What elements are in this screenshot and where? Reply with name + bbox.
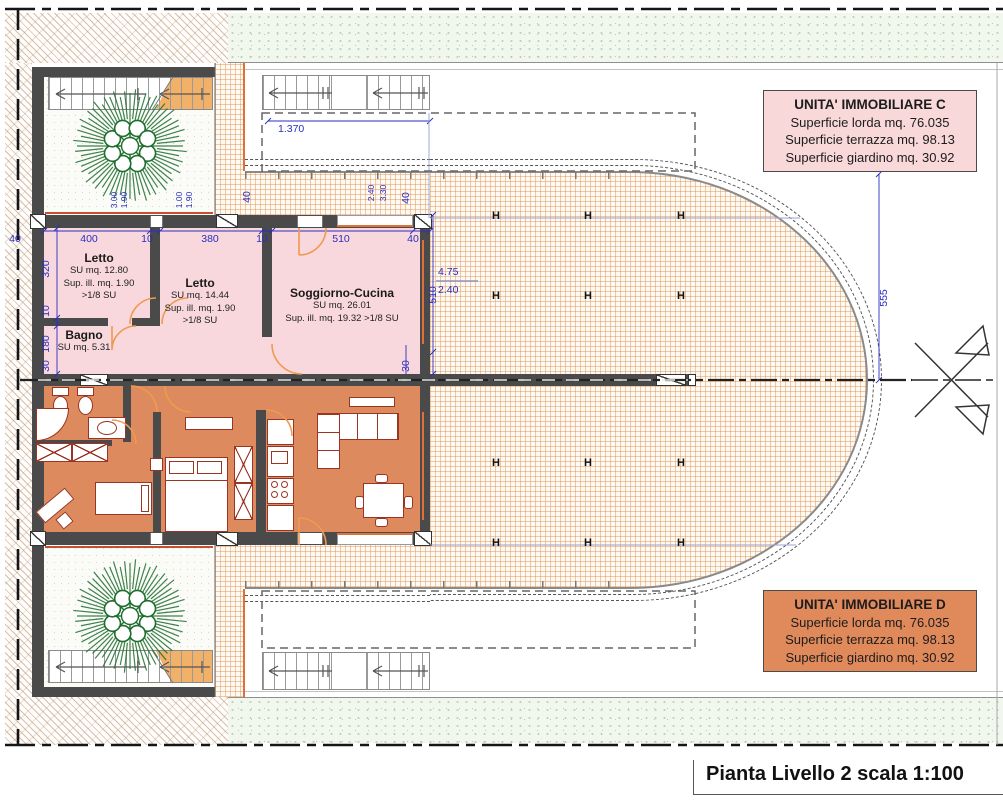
opening-c-top — [150, 216, 163, 227]
wall-party-end-cap — [688, 374, 696, 386]
sofa-vertical — [317, 413, 340, 469]
dim-label: 320 — [40, 254, 52, 284]
partition-bed1-bed2-d — [153, 412, 161, 532]
toilet — [52, 387, 69, 396]
unit-lorda: Superficie lorda mq. 76.035 — [764, 614, 976, 632]
kitchen-sink — [271, 451, 288, 464]
dim-label: 4.75 — [438, 266, 472, 278]
garden-stairs-top — [48, 77, 213, 110]
dim-label: 1.00 — [174, 187, 184, 213]
dim-label: 3.30 — [378, 180, 388, 206]
railing-dash-bottom-1 — [245, 595, 430, 596]
unit-title: UNITA' IMMOBILIARE C — [764, 96, 976, 114]
info-box-unit-c: UNITA' IMMOBILIARE C Superficie lorda mq… — [763, 90, 977, 172]
room-ill: Sup. ill. mq. 19.32 >1/8 SU — [270, 313, 414, 326]
dim-label: 555 — [878, 283, 890, 313]
dim-label: 30 — [40, 351, 52, 381]
tv-console — [349, 397, 395, 407]
dim-label: 400 — [75, 233, 103, 245]
window-d-bottom-mid — [216, 532, 238, 546]
pillow — [169, 461, 194, 474]
terrace-strip-bottom — [215, 545, 245, 697]
room-label-soggiorno: Soggiorno-Cucina SU mq. 26.01 Sup. ill. … — [270, 286, 414, 325]
window-c-top-mid — [216, 214, 238, 228]
drawing-title: Pianta Livello 2 scala 1:100 — [706, 763, 964, 786]
pillow — [197, 461, 222, 474]
room-ill: Sup. ill. mq. 1.90 — [36, 278, 162, 291]
room-su: SU mq. 26.01 — [270, 300, 414, 313]
room-name: Soggiorno-Cucina — [270, 286, 414, 300]
railing-dash-top-2 — [245, 165, 430, 166]
window-line-d-right — [422, 412, 424, 520]
sink-basin — [97, 421, 117, 435]
railing-ticks-bottom — [245, 581, 630, 588]
chair — [375, 518, 388, 527]
unit-lorda: Superficie lorda mq. 76.035 — [764, 114, 976, 132]
window-line-c-right — [422, 240, 424, 344]
window-c-top-left — [30, 214, 46, 229]
unit-terrazza: Superficie terrazza mq. 98.13 — [764, 631, 976, 649]
floor-plan-drawing: H H H H H H H H H H H H Letto SU mq. 12.… — [0, 0, 1003, 800]
opening-d-bottom — [150, 533, 163, 544]
dim-label: 1.370 — [278, 123, 322, 135]
drain-marker: H — [677, 537, 685, 549]
french-doors-garden-d — [45, 546, 213, 548]
dining-table — [363, 483, 404, 518]
stair-flight — [263, 653, 331, 689]
window-d-bottom-left — [30, 531, 46, 546]
bidet-bowl — [78, 396, 93, 415]
window-party-left — [80, 374, 108, 386]
drain-marker: H — [492, 457, 500, 469]
grass-strip-top — [228, 13, 1003, 63]
drain-marker: H — [492, 210, 500, 222]
dim-label: 40 — [241, 182, 253, 212]
drain-marker: H — [677, 290, 685, 302]
hatch-area-top-left — [5, 13, 228, 63]
dim-label: 10 — [137, 233, 157, 245]
window-c-top-right — [414, 214, 432, 229]
drain-marker: H — [584, 210, 592, 222]
room-ill: Sup. ill. mq. 1.90 — [146, 303, 254, 316]
dim-label: 510 — [327, 233, 355, 245]
bed-blanket-line — [166, 480, 227, 481]
pillow — [141, 485, 149, 512]
bidet — [77, 387, 94, 396]
railing-dash-bottom-2 — [245, 601, 430, 602]
unit-terrazza: Superficie terrazza mq. 98.13 — [764, 131, 976, 149]
dim-label: 1.90 — [119, 187, 129, 213]
nightstand — [150, 458, 163, 471]
stair-landing — [331, 76, 367, 109]
room-su: SU mq. 5.31 — [44, 342, 124, 355]
drain-marker: H — [492, 290, 500, 302]
unit-giardino: Superficie giardino mq. 30.92 — [764, 149, 976, 167]
dim-label: 2.40 — [438, 284, 472, 296]
french-window-c — [337, 215, 413, 227]
wall-garden-top — [32, 67, 215, 77]
burner — [271, 491, 278, 498]
room-label-bagno: Bagno SU mq. 5.31 — [44, 328, 124, 355]
parapet-line-bottom — [243, 589, 245, 697]
stair-landing — [331, 653, 367, 689]
dim-label: 380 — [196, 233, 224, 245]
drain-marker: H — [584, 457, 592, 469]
chair — [375, 474, 388, 483]
dim-label: 40 — [400, 233, 426, 245]
stair-treads — [49, 651, 212, 682]
stairwell-top — [262, 75, 430, 110]
unit-giardino: Superficie giardino mq. 30.92 — [764, 649, 976, 667]
chair — [404, 496, 413, 509]
room-su: SU mq. 14.44 — [146, 290, 254, 303]
dim-label: 1.90 — [184, 187, 194, 213]
room-name: Bagno — [44, 328, 124, 342]
chair — [355, 496, 364, 509]
title-separator-vertical — [693, 760, 694, 794]
unit-title: UNITA' IMMOBILIARE D — [764, 596, 976, 614]
hatch-area-left — [5, 13, 32, 745]
parapet-line-top — [243, 63, 245, 171]
room-label-letto2: Letto SU mq. 14.44 Sup. ill. mq. 1.90 >1… — [146, 276, 254, 328]
wardrobe — [72, 443, 108, 462]
railing-ticks-top — [245, 172, 630, 179]
entry-opening-c — [297, 216, 323, 227]
shelf — [185, 417, 233, 430]
grass-strip-bottom — [228, 697, 1003, 743]
window-d-bottom-right — [414, 531, 432, 546]
french-window-d — [337, 533, 413, 545]
burner — [281, 481, 288, 488]
dim-label: 40 — [2, 233, 28, 245]
room-name: Letto — [146, 276, 254, 290]
wardrobe — [234, 483, 253, 520]
burner — [281, 491, 288, 498]
dim-label: 40 — [400, 183, 412, 213]
dim-label: 2.40 — [366, 180, 376, 206]
fridge — [267, 419, 294, 445]
info-box-unit-d: UNITA' IMMOBILIARE D Superficie lorda mq… — [763, 590, 977, 672]
edge-line-bottom — [228, 691, 1003, 692]
wardrobe — [234, 446, 253, 483]
drain-marker: H — [677, 457, 685, 469]
dim-label: 10 — [252, 233, 272, 245]
room-frac: >1/8 SU — [36, 290, 162, 303]
wall-party — [32, 374, 693, 386]
dim-label: 30 — [400, 351, 412, 381]
room-name: Letto — [36, 251, 162, 265]
hatch-area-bottom-left — [5, 697, 228, 745]
window-party-right — [656, 374, 686, 386]
room-frac: >1/8 SU — [146, 315, 254, 328]
wall-garden-bottom — [32, 687, 215, 697]
axis-marker-icon — [915, 326, 989, 434]
stairwell-bottom — [262, 652, 430, 690]
dim-label: 3.00 — [109, 187, 119, 213]
partition-bed2-soggiorno-d — [256, 410, 266, 532]
stair-treads — [49, 78, 212, 109]
drain-marker: H — [584, 537, 592, 549]
drain-marker: H — [492, 537, 500, 549]
drain-marker: H — [677, 210, 685, 222]
edge-line-top — [228, 69, 1003, 70]
burner — [271, 481, 278, 488]
stair-flight — [263, 76, 331, 109]
stair-flight — [367, 653, 429, 689]
dim-label: 10 — [40, 296, 52, 326]
drain-marker: H — [584, 290, 592, 302]
stair-flight — [367, 76, 429, 109]
wardrobe — [36, 443, 72, 462]
garden-stairs-bottom — [48, 650, 213, 683]
title-separator-horizontal — [693, 794, 1003, 795]
entry-opening-d — [297, 533, 323, 544]
room-label-letto1: Letto SU mq. 12.80 Sup. ill. mq. 1.90 >1… — [36, 251, 162, 303]
kitchen-cabinet — [267, 505, 294, 531]
room-su: SU mq. 12.80 — [36, 265, 162, 278]
railing-dash-top-1 — [245, 159, 430, 160]
